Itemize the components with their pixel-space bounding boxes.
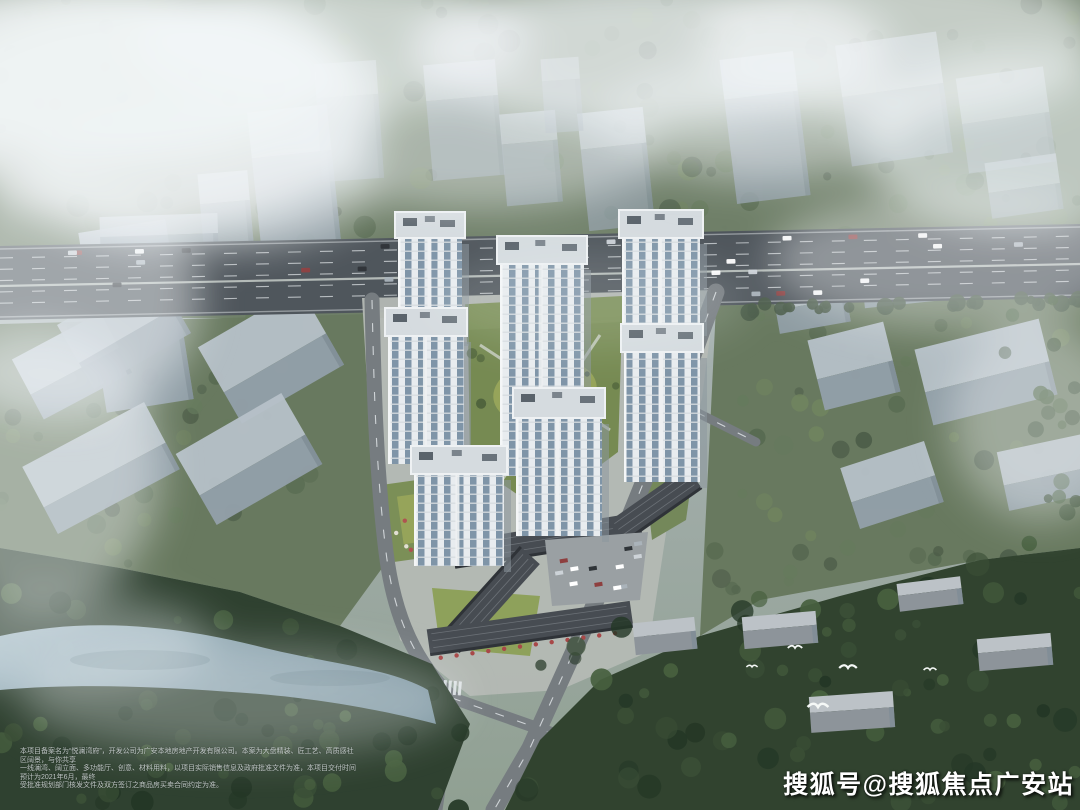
tower [411, 446, 511, 572]
disclaimer-line-1: 本项目备案名为“悦澜湾府”，开发公司为广安本地房地产开发有限公司。本案为大盘精装… [20, 748, 356, 765]
tower [513, 388, 609, 542]
aerial-city-rendering: 本项目备案名为“悦澜湾府”，开发公司为广安本地房地产开发有限公司。本案为大盘精装… [0, 0, 1080, 810]
disclaimer-text: 本项目备案名为“悦澜湾府”，开发公司为广安本地房地产开发有限公司。本案为大盘精装… [20, 748, 356, 791]
massing-block [809, 691, 895, 733]
rendered-scene [0, 0, 1080, 810]
disclaimer-line-3: 受批准规划部门核发文件及双方签订之商品房买卖合同约定为准。 [20, 782, 356, 791]
watermark-text: 搜狐号@搜狐焦点广安站 [783, 765, 1074, 801]
massing-block [977, 633, 1054, 671]
tower [621, 324, 707, 488]
massing-block [632, 617, 697, 655]
disclaimer-line-2: 一线澜湾、阔立面、多功能厅、创意、材料用料，以项目实际销售信息及政府批准文件为准… [20, 765, 356, 782]
massing-block [742, 611, 819, 649]
